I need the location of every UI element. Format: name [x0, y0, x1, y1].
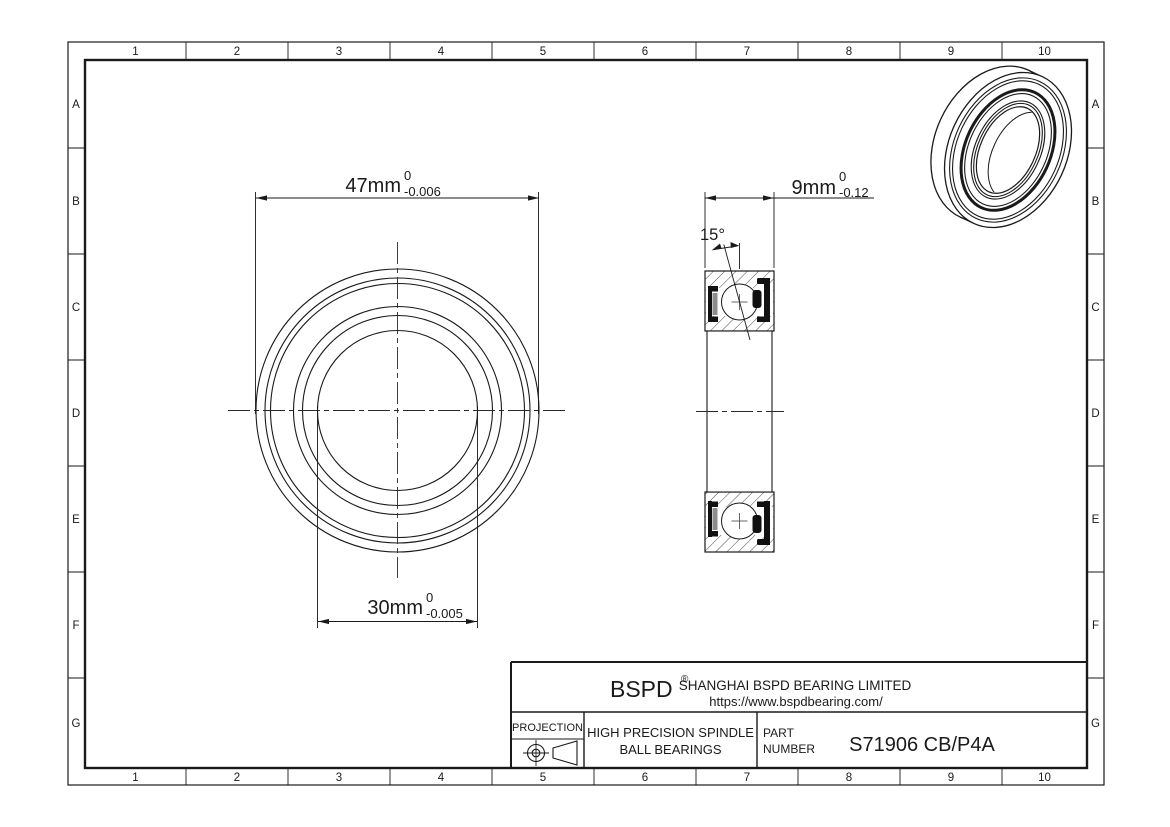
grid-row-labels-left: A B C D E F G [72, 99, 81, 730]
dim-width-upper-tol: 0 [839, 169, 846, 184]
grid-row-label: A [72, 99, 80, 111]
grid-col-label: 9 [948, 46, 954, 58]
dim-outer-value: 47mm [345, 175, 401, 197]
projection-symbol-icon [523, 740, 577, 766]
company-website: https://www.bspdbearing.com/ [709, 694, 883, 709]
dim-bore-lower-tol: -0.005 [426, 606, 463, 621]
dim-bore-value: 30mm [367, 597, 423, 619]
grid-row-label: C [1091, 302, 1099, 314]
product-name-line2: BALL BEARINGS [619, 742, 721, 757]
grid-col-label: 7 [744, 46, 750, 58]
title-block: BSPD ® SHANGHAI BSPD BEARING LIMITED htt… [511, 662, 1087, 768]
dim-outer-lower-tol: -0.006 [404, 184, 441, 199]
grid-col-label: 2 [234, 46, 240, 58]
grid-col-label: 6 [642, 772, 648, 784]
grid-col-label: 1 [132, 46, 138, 58]
contact-angle-label: 15° [700, 226, 725, 244]
grid-row-label: F [1092, 620, 1099, 632]
grid-col-label: 10 [1038, 772, 1051, 784]
grid-row-label: C [72, 302, 80, 314]
grid-row-label: D [1091, 408, 1099, 420]
grid-row-label: B [72, 196, 80, 208]
dim-width-value: 9mm [792, 177, 836, 199]
grid-col-label: 8 [846, 772, 852, 784]
grid-row-label: E [72, 514, 80, 526]
grid-row-label: E [1092, 514, 1100, 526]
grid-col-label: 5 [540, 772, 546, 784]
grid-col-label: 4 [438, 46, 445, 58]
grid-col-label: 9 [948, 772, 954, 784]
dimension-width: 9mm 0 -0.12 [705, 169, 874, 268]
front-view [228, 242, 567, 578]
grid-row-label: B [1092, 196, 1100, 208]
dim-bore-upper-tol: 0 [426, 590, 433, 605]
engineering-drawing: 1 2 3 4 5 6 7 8 9 10 1 2 3 4 5 6 7 8 9 1… [0, 0, 1170, 827]
grid-col-label: 2 [234, 772, 240, 784]
dim-outer-upper-tol: 0 [404, 168, 411, 183]
dim-width-lower-tol: -0.12 [839, 185, 869, 200]
brand-logo-text: BSPD [610, 676, 673, 702]
grid-col-label: 7 [744, 772, 750, 784]
grid-row-label: F [72, 620, 79, 632]
grid-row-labels-right: A B C D E F G [1091, 99, 1100, 730]
grid-col-label: 8 [846, 46, 852, 58]
grid-col-label: 4 [438, 772, 445, 784]
grid-col-label: 5 [540, 46, 546, 58]
grid-col-label: 1 [132, 772, 138, 784]
bearing-3d-view [907, 45, 1096, 248]
company-name: SHANGHAI BSPD BEARING LIMITED [679, 678, 912, 693]
grid-row-label: G [1091, 718, 1100, 730]
grid-col-label: 3 [336, 46, 342, 58]
drawing-sheet: 1 2 3 4 5 6 7 8 9 10 1 2 3 4 5 6 7 8 9 1… [0, 0, 1170, 827]
section-view: 15° [696, 226, 784, 552]
part-number-label-line1: PART [763, 726, 795, 740]
grid-column-labels-bottom: 1 2 3 4 5 6 7 8 9 10 [132, 772, 1051, 784]
grid-row-label: A [1092, 99, 1100, 111]
grid-col-label: 10 [1038, 46, 1051, 58]
part-number-label-line2: NUMBER [763, 742, 815, 756]
grid-column-labels-top: 1 2 3 4 5 6 7 8 9 10 [132, 46, 1051, 58]
grid-row-dividers [68, 148, 1104, 678]
part-number-value: S71906 CB/P4A [849, 734, 995, 756]
grid-col-label: 3 [336, 772, 342, 784]
grid-row-label: G [72, 718, 81, 730]
grid-col-label: 6 [642, 46, 648, 58]
grid-row-label: D [72, 408, 80, 420]
product-name-line1: HIGH PRECISION SPINDLE [587, 725, 754, 740]
section-lower-ring [705, 492, 774, 552]
grid-column-dividers [186, 42, 1002, 785]
projection-label: PROJECTION [512, 722, 583, 734]
